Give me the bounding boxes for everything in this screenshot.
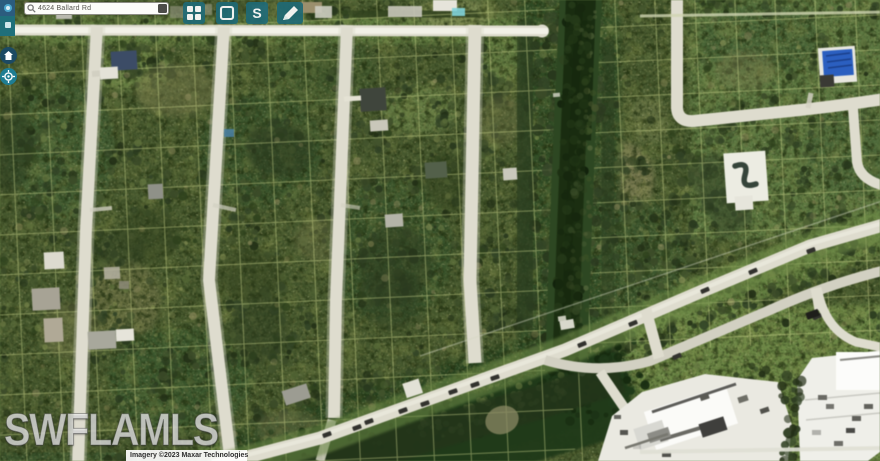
svg-text:S: S [252,5,261,21]
